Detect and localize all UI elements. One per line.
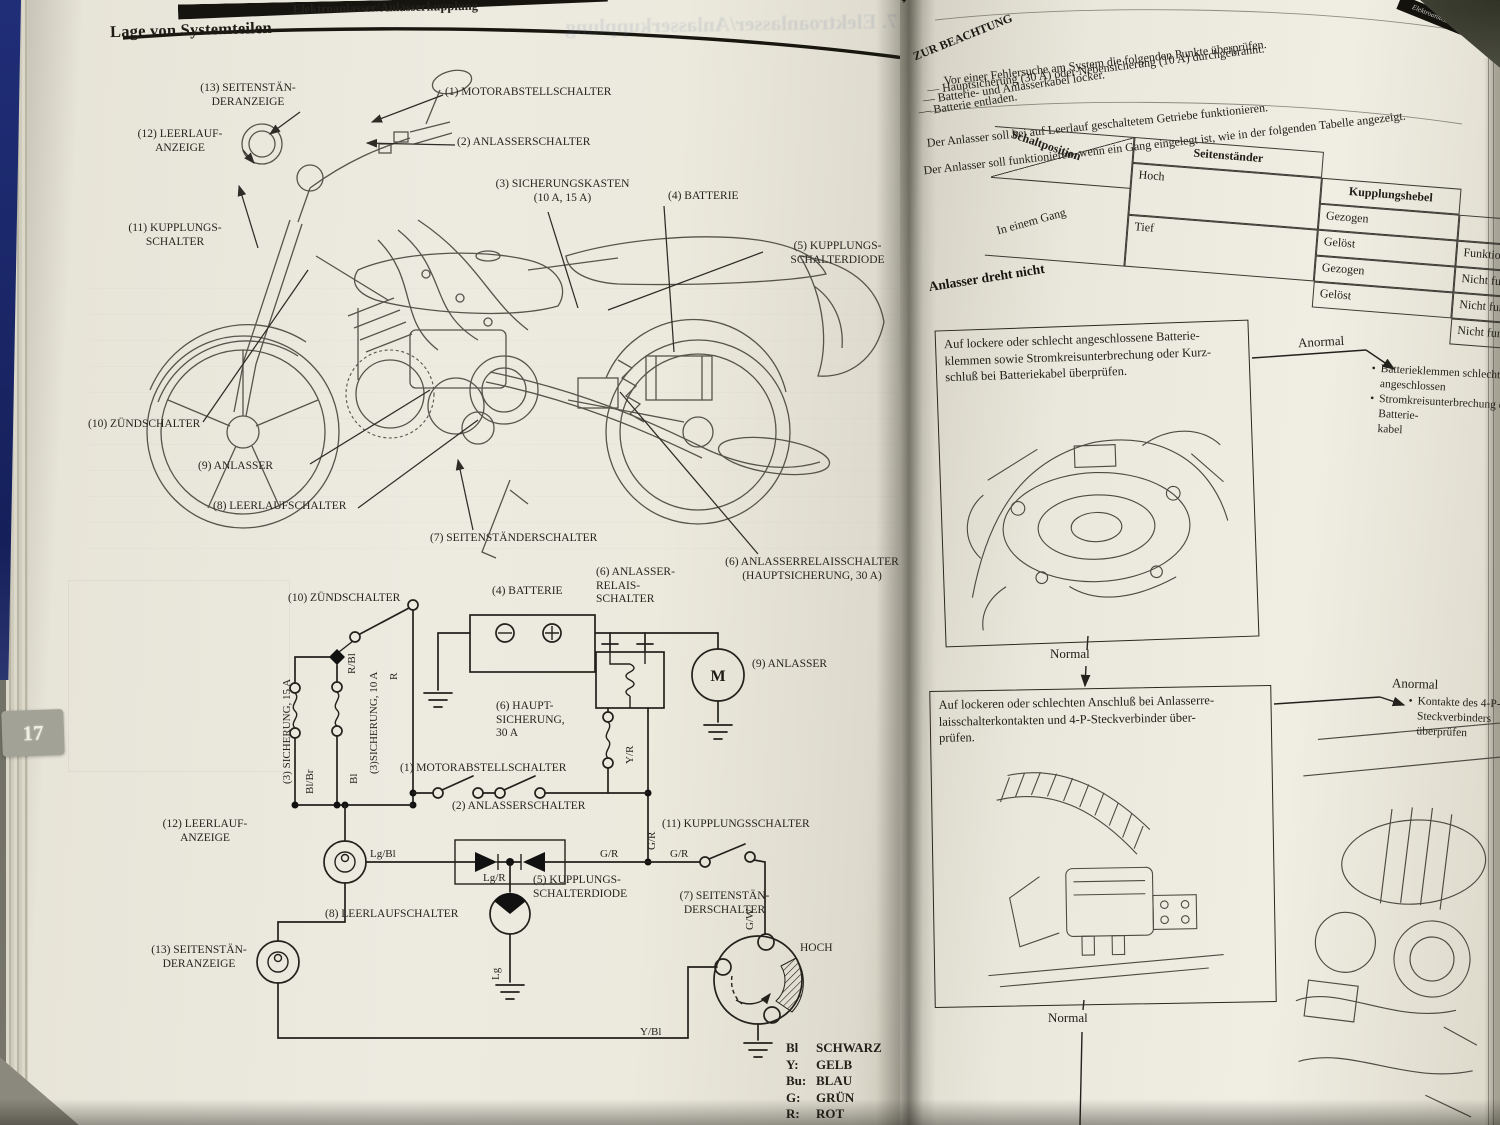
moto-label-2: (11) KUPPLUNGS- SCHALTER — [95, 222, 255, 249]
moto-label-11: (7) SEITENSTÄNDERSCHALTER — [430, 532, 675, 546]
wire-label-14: Y/Bl — [640, 1026, 661, 1038]
wire-label-11: Lg/R — [483, 872, 506, 884]
moto-label-4: (2) ANLASSERSCHALTER — [457, 136, 667, 150]
flow-box-2: Auf lockeren oder schlechten Anschluß be… — [929, 685, 1276, 1008]
schematic-label-12: HOCH — [800, 942, 860, 956]
wire-label-7: Lg/Bl — [370, 848, 396, 860]
moto-label-8: (10) ZÜNDSCHALTER — [88, 418, 273, 432]
schematic-label-7: (12) LEERLAUF- ANZEIGE — [145, 818, 265, 845]
legend-row-3: G:GRÜN — [786, 1090, 882, 1107]
relay-connector-illustration — [949, 752, 1257, 1002]
moto-label-0: (13) SEITENSTÄN- DERANZEIGE — [168, 82, 328, 109]
flow-box-1-text: Auf lockere oder schlecht angeschlossene… — [936, 321, 1250, 386]
anormal-label-1: Anormal — [1298, 333, 1345, 351]
schematic-label-11: (7) SEITENSTÄN- DERSCHALTER — [652, 890, 797, 917]
moto-label-6: (4) BATTERIE — [668, 190, 778, 204]
right-page: Elektroanlasser/Anlasserkupplung Fehlers… — [900, 0, 1500, 1125]
motor-symbol: M — [710, 668, 725, 685]
leader-arrows — [203, 95, 763, 554]
wire-label-13: Lg — [490, 968, 502, 980]
book-photo: 17 Elektroanlasser/Anlasserkupplung Lage… — [0, 0, 1500, 1125]
legend-row-0: BlSCHWARZ — [786, 1040, 882, 1057]
schematic-label-5: (1) MOTORABSTELLSCHALTER — [400, 762, 645, 776]
schematic-label-8: (11) KUPPLUNGSSCHALTER — [662, 818, 877, 832]
schematic-label-6: (2) ANLASSERSCHALTER — [452, 800, 677, 814]
moto-label-12: (6) ANLASSERRELAISSCHALTER (HAUPTSICHERU… — [697, 556, 906, 583]
wire-label-8: G/R — [600, 848, 618, 860]
wire-label-4: Bl/Br — [304, 770, 316, 794]
schematic-label-10: (8) LEERLAUFSCHALTER — [325, 908, 500, 922]
anormal-results-1: Batterieklemmen schlecht angeschlossenSt… — [1368, 362, 1500, 445]
normal-label-2: Normal — [1048, 1010, 1088, 1026]
result-2-0: Kontakte des 4-P-Steckverbinders überprü… — [1407, 694, 1500, 743]
result-1-1: Stromkreisunterbrechung der Batterie- ka… — [1368, 391, 1500, 445]
anormal-results-2: Kontakte des 4-P-Steckverbinders überprü… — [1407, 694, 1500, 743]
left-page: Elektroanlasser/Anlasserkupplung Lage vo… — [28, 0, 906, 1125]
page-title: Lage von Systemteilen — [110, 18, 272, 42]
wire-label-10: G/R — [646, 832, 658, 850]
moto-label-9: (9) ANLASSER — [198, 460, 338, 474]
moto-label-5: (3) SICHERUNGSKASTEN (10 A, 15 A) — [470, 178, 655, 205]
schematic-label-0: (10) ZÜNDSCHALTER — [288, 592, 458, 606]
moto-label-7: (5) KUPPLUNGS- SCHALTERDIODE — [755, 240, 906, 267]
engine-illustration — [946, 383, 1246, 638]
wire-label-0: (3) SICHERUNG, 15 A — [281, 679, 293, 784]
anormal-label-2: Anormal — [1392, 675, 1439, 693]
wire-label-9: G/R — [670, 848, 688, 860]
schematic-label-3: (9) ANLASSER — [752, 658, 862, 672]
schematic-label-1: (4) BATTERIE — [492, 585, 602, 599]
wire-label-6: Y/R — [624, 746, 636, 764]
chapter-tab-number: 17 — [22, 720, 44, 746]
moto-label-1: (12) LEERLAUF- ANZEIGE — [100, 128, 260, 155]
schematic-label-4: (6) HAUPT- SICHERUNG, 30 A — [496, 700, 606, 741]
flow-box-1: Auf lockere oder schlecht angeschlossene… — [935, 320, 1260, 648]
chapter-tab: 17 — [1, 709, 65, 757]
legend-row-4: R:ROT — [786, 1106, 882, 1123]
schematic-label-13: (13) SEITENSTÄN- DERANZEIGE — [133, 944, 265, 971]
normal-label-1: Normal — [1050, 646, 1090, 662]
wire-label-1: (3)SICHERUNG, 10 A — [368, 672, 380, 774]
moto-label-10: (8) LEERLAUFSCHALTER — [213, 500, 418, 514]
wire-label-2: R/Bl — [346, 653, 358, 674]
wire-color-legend: BlSCHWARZY:GELBBu:BLAUG:GRÜNR:ROT — [786, 1040, 882, 1123]
wire-label-3: R — [388, 673, 400, 680]
flow-box-2-text: Auf lockeren oder schlechten Anschluß be… — [930, 686, 1271, 746]
wire-label-12: G/W — [744, 909, 756, 930]
moto-label-3: (1) MOTORABSTELLSCHALTER — [445, 86, 680, 100]
schematic-label-2: (6) ANLASSER- RELAIS- SCHALTER — [596, 566, 706, 607]
wire-label-5: Bl — [348, 774, 360, 784]
legend-row-1: Y:GELB — [786, 1057, 882, 1074]
legend-row-2: Bu:BLAU — [786, 1073, 882, 1090]
